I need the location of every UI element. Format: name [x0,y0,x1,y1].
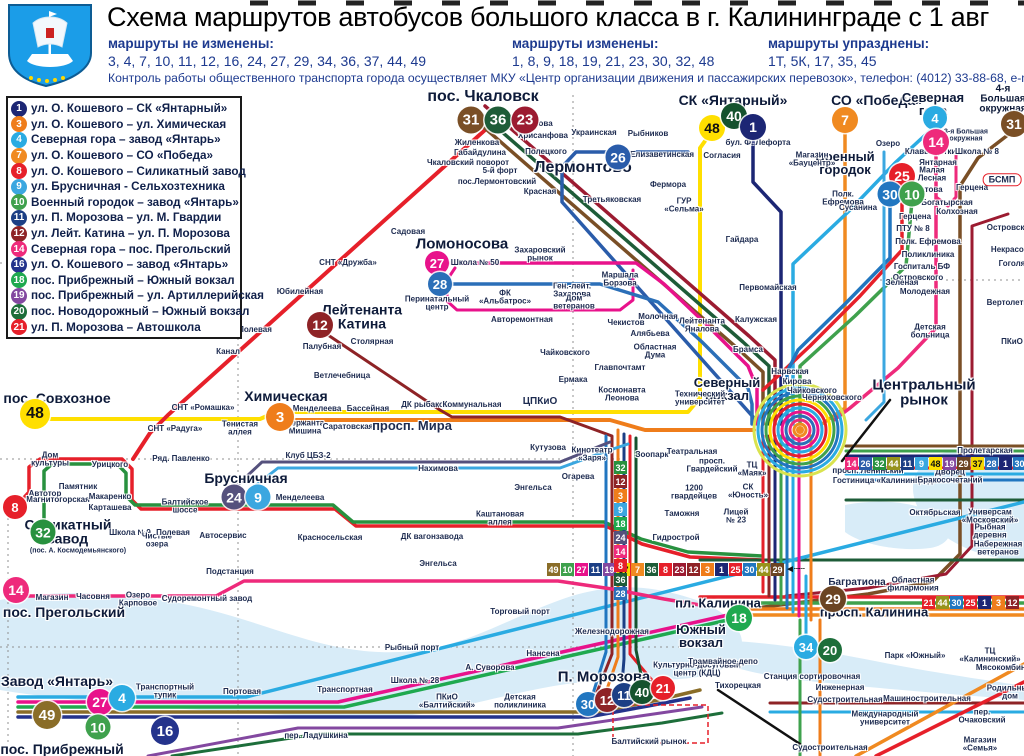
legend-item-route-3: 3ул. О. Кошевого – ул. Химическая [11,117,237,133]
map-stop-label: Магазин [36,594,69,602]
route-strip-cell: 1 [715,563,728,576]
map-stop-label: Балтийский рынок [612,738,687,746]
map-header: Схема маршрутов автобусов большого класс… [0,0,1024,94]
route-badge: 34 [794,635,818,659]
map-stop-label: Транспортный тупик [136,684,194,701]
route-strip-cell: 49 [547,563,560,576]
map-stop-label: Урицкого [92,461,128,469]
map-stop-label: Вертолетная [987,299,1024,307]
map-stop-label: Коммунальная [442,401,501,409]
route-strip-cell: 29 [771,563,784,576]
route-badge: 4 [11,132,27,148]
legend-route-destination: ул. Брусничная - Сельхозтехника [31,180,225,193]
map-stop-label: Школа № 8 [955,148,999,156]
route-strip-cell: 36 [645,563,658,576]
map-stop-label: Полецкого [525,148,567,156]
route-strip-cell: 1 [978,596,991,609]
route-badge: 49 [33,701,61,729]
route-badge: 10 [11,194,27,210]
map-stop-label: Судоремонтный завод [162,595,252,603]
map-stop-label: Родильный дом [987,685,1024,702]
map-stop-label: Озеро [876,140,900,148]
map-stop-label: СНТ «Дружба» [319,259,377,267]
map-stop-label: Фермора [650,181,686,189]
route-badge: 10 [86,715,111,740]
map-stop-label: Театральная [667,448,718,456]
route-strip-cell: 3 [614,489,627,502]
map-stop-label: Ряд. Павленко [152,455,209,463]
route-strip-cell: 8 [659,563,672,576]
map-stop-label: Набережная ветеранов [974,541,1022,558]
map-stop-label: пер. Очаковский [958,709,1005,726]
route-badge: 40 [630,680,654,704]
legend-item-route-4: 4Северная гора – завод «Янтарь» [11,132,237,148]
map-stop-label: Дворец Бракосочетаний [918,469,983,486]
control-note: Контроль работы общественного транспорта… [108,71,1024,85]
map-stop-label: Рыбников [628,130,669,138]
map-stop-label: Полк. Ефремова [895,238,961,246]
map-stop-label: Станция сортировочная [764,673,861,681]
route-badge: 4 [109,685,135,711]
map-stop-label: ПТУ № 8 [896,225,929,233]
route-strip-cell: 10 [561,563,574,576]
direction-arrow-icon: ◄┄┄ [785,563,804,576]
legend-item-route-11: 11ул. П. Морозова – ул. М. Гвардии [11,210,237,226]
bus-route-map-page: пос. ЧкаловскЛермонтовоСК «Янтарный»СО «… [0,0,1024,756]
map-stop-label: ДК вагонзавода [401,533,463,541]
route-strip-cell: 12 [1006,596,1019,609]
map-stop-label: Некрасова [991,246,1024,254]
route-strip-cell: 26 [859,457,872,470]
map-place-label: Завод «Янтарь» [1,674,113,688]
route-strip-cell: 37 [971,457,984,470]
map-stop-label: ПКиО «Балтийский» [419,694,475,711]
route-strip-cell: 29 [957,457,970,470]
map-stop-label: ЦПКиО [523,397,558,408]
map-place-label: пос. Прегольский [3,605,125,619]
route-strip-cell: 44 [887,457,900,470]
route-strip-cell: 44 [757,563,770,576]
map-stop-label: Украинская [571,129,616,137]
map-stop-label: Колхозная [936,208,978,216]
map-stop-label: просп. Гвардейский [686,458,737,475]
legend-route-destination: ул. О. Кошевого – ул. Химическая [31,118,226,131]
route-badge: 8 [11,163,27,179]
route-strip-cell: 12 [687,563,700,576]
route-badge: 8 [3,495,27,519]
legend-route-destination: Северная гора – пос. Прегольский [31,243,231,256]
map-stop-label: Судостроительная [807,696,882,704]
map-stop-label: Малая Лесная [918,167,946,184]
map-stop-label: Ветлечебница [314,372,370,380]
routes-changed-list: 1, 8, 9, 18, 19, 21, 23, 30, 32, 48 [512,53,714,69]
map-stop-label: (пос. А. Космодемьянского) [30,547,126,554]
map-stop-label: Детская поликлиника [494,694,546,711]
route-strip-cell: 27 [575,563,588,576]
legend-item-route-1: 1ул. О. Кошевого – СК «Янтарный» [11,101,237,117]
route-badge: 18 [726,605,752,631]
legend-item-route-9: 9ул. Брусничная - Сельхозтехника [11,179,237,195]
legend-route-destination: ул. П. Морозова – ул. М. Гвардии [31,211,221,224]
route-strip-cell: 3 [992,596,1005,609]
legend-item-route-19: 19пос. Прибрежный – ул. Артиллерийская [11,288,237,304]
map-stop-label: БСМП [983,173,1022,186]
map-stop-label: Юбилейная [277,288,323,296]
route-strip-cell: 30 [743,563,756,576]
route-badge: 48 [20,399,50,429]
map-stop-label: Школа № 50 [451,259,499,267]
route-badge: 28 [428,272,452,296]
map-stop-label: Дом культуры [31,452,69,469]
map-stop-label: Молочная [638,313,678,321]
map-stop-label: 1200 гвардейцев [671,485,717,502]
map-stop-label: Каштановая аллея [476,511,524,528]
map-stop-label: Столярная [351,338,394,346]
map-stop-label: Госпиталь БФ [894,263,950,271]
map-stop-label: Кутузова [530,444,566,452]
routes-unchanged-group: маршруты не изменены: 3, 4, 7, 10, 11, 1… [108,36,426,69]
routes-changed-label: маршруты изменены: [512,36,714,51]
map-stop-label: Зоопарк [636,451,669,459]
map-place-label: Ломоносова [416,236,508,251]
route-strip-cell: 12 [614,475,627,488]
map-stop-label: Канал [216,348,240,356]
map-stop-label: пер. Ладушкина [284,732,347,740]
kaliningrad-coat-of-arms-icon [5,3,95,89]
route-badge: 12 [307,312,333,338]
route-badge: 16 [151,717,179,745]
legend-route-destination: ул. О. Кошевого – СК «Янтарный» [31,102,227,115]
map-stop-label: Чайковского [540,349,590,357]
route-strip: 491027111937736823123125304429◄┄┄ [547,563,804,576]
map-stop-label: Октябрьская [909,509,960,517]
map-stop-label: ФК «Альбатрос» [479,290,531,307]
map-stop-label: Зеленая [886,279,919,287]
route-badge: 29 [820,586,846,612]
routes-changed-group: маршруты изменены: 1, 8, 9, 18, 19, 21, … [512,36,714,69]
route-strip-cell: 25 [964,596,977,609]
map-stop-label: Саратовская [323,423,374,431]
page-title: Схема маршрутов автобусов большого класс… [107,2,989,33]
route-badge: 31 [458,107,485,134]
map-stop-label: Трамвайное депо [688,658,758,666]
map-stop-label: Бассейная [347,405,389,413]
map-stop-label: Кинотеатр «Заря» [572,447,613,464]
map-stop-label: Областная филармония [887,577,938,594]
map-stop-label: Транспортная [317,686,373,694]
map-stop-label: Дом ветеранов [553,295,595,312]
map-stop-label: Жиленкова [455,139,499,147]
map-stop-label: Гайдара [726,236,759,244]
map-stop-label: Гоголя [999,260,1024,268]
map-stop-label: Менделеева [293,405,342,413]
map-stop-label: Герцена [956,184,988,192]
route-badge: 7 [832,107,858,133]
map-stop-label: Магазин «Бауцентр» [789,152,836,169]
route-badge: 20 [11,304,27,320]
route-badge: 18 [11,272,27,288]
map-stop-label: Менделеева [276,494,325,502]
map-stop-label: Мясокомбинат [976,664,1024,672]
route-strip-cell: 36 [614,573,627,586]
route-badge: 36 [485,107,512,134]
map-stop-label: Энгельса [419,560,456,568]
legend-item-route-18: 18пос. Прибрежный – Южный вокзал [11,273,237,289]
map-stop-label: ТЦ «Маяк» [738,462,767,479]
legend-route-destination: пос. Новодорожный – Южный вокзал [31,305,249,318]
legend-route-destination: ул. О. Кошевого – завод «Янтарь» [31,258,228,271]
route-strip-cell: 7 [631,563,644,576]
map-stop-label: Машиностроительная [883,695,971,703]
route-legend: 1ул. О. Кошевого – СК «Янтарный»3ул. О. … [6,96,242,339]
map-stop-label: Красная [524,188,557,196]
map-stop-label: пос.Лермонтовский [458,178,536,186]
map-stop-label: Подстанция [206,568,254,576]
route-badge: 23 [512,107,539,134]
map-stop-label: ПКиО [1001,338,1023,346]
route-strip-cell: 23 [673,563,686,576]
routes-unchanged-label: маршруты не изменены: [108,36,426,51]
map-stop-label: Палубная [303,343,342,351]
route-strip-cell: 9 [915,457,928,470]
legend-item-route-14: 14Северная гора – пос. Прегольский [11,241,237,257]
legend-route-destination: ул. П. Морозова – Автошкола [31,321,201,334]
map-stop-label: Космонавта Леонова [598,387,645,404]
route-strip-vertical: 32123918241483628 [614,461,627,600]
map-stop-label: Ермака [559,376,588,384]
map-stop-label: СНТ «Ромашка» [172,404,235,412]
route-strip-cell: 1 [999,457,1012,470]
map-stop-label: Международный университет [852,711,919,728]
map-stop-label: Маршала Борзова [602,272,639,289]
route-badge: 14 [923,129,949,155]
map-stop-label: СНТ «Радуга» [148,425,203,433]
route-strip-cell: 30 [950,596,963,609]
map-stop-label: Огарева [562,473,595,481]
legend-route-destination: пос. Прибрежный – ул. Артиллерийская [31,289,264,302]
route-strip-cell: 28 [985,457,998,470]
legend-item-route-10: 10Военный городок – завод «Янтарь» [11,195,237,211]
map-stop-label: ГУР «Сельма» [664,198,703,215]
map-stop-label: Третьяковская [583,196,641,204]
route-badge: 16 [11,257,27,273]
route-strip: 214430251312 [922,596,1019,609]
map-place-label: пос. Совхозное [3,391,110,405]
map-stop-label: Лицей № 23 [724,509,749,526]
map-stop-label: СК «Юность» [728,484,768,501]
route-strip-cell: 11 [589,563,602,576]
route-badge: 11 [11,210,27,226]
map-stop-label: Озеро Карповое [119,592,157,609]
map-stop-label: Магнитогорская [26,496,90,504]
map-place-label: Центральный рынок [872,378,975,409]
map-stop-label: Парк «Южный» [885,652,946,660]
route-strip-cell: 25 [729,563,742,576]
route-strip-cell: 44 [936,596,949,609]
route-badge: 21 [11,319,27,335]
map-stop-label: Технический университет [675,391,725,408]
route-strip-cell: 21 [922,596,935,609]
route-badge: 31 [1001,111,1024,137]
map-stop-label: Авторемонтная [491,316,553,324]
legend-item-route-16: 16ул. О. Кошевого – завод «Янтарь» [11,257,237,273]
map-stop-label: Лейтенанта Яналова [679,318,725,335]
map-stop-label: Нансена [526,650,559,658]
map-stop-label: 5-й форт [483,167,518,175]
map-place-label: Южный вокзал [676,623,726,650]
route-strip-cell: 14 [614,545,627,558]
map-stop-label: Областная Дума [634,344,677,361]
map-stop-label: Энгельса [514,484,551,492]
map-place-label: Лейтенанта Катина [322,303,402,332]
map-stop-label: Брамса [733,346,763,354]
route-strip-cell: 32 [614,461,627,474]
map-stop-label: Тенистая аллея [222,421,258,438]
route-strip-cell: 11 [901,457,914,470]
map-stop-label: Тихорецкая [715,682,761,690]
map-place-label: пос. Прибрежный [0,742,123,756]
route-badge: 14 [3,577,29,603]
route-strip-cell: 3 [701,563,714,576]
map-stop-label: Часовня [76,593,110,601]
route-strip-cell: 30 [1013,457,1024,470]
map-stop-label: 3-я Большая окружная [944,129,988,144]
route-badge: 1 [11,101,27,117]
map-stop-label: Торговый порт [490,608,550,616]
map-stop-label: Островского [987,224,1024,232]
map-stop-label: Нахимова [418,465,458,473]
map-stop-label: Молодежная [900,288,950,296]
legend-route-destination: Военный городок – завод «Янтарь» [31,196,239,209]
route-badge: 3 [11,116,27,132]
map-stop-label: Памятник [59,483,97,491]
map-stop-label: Железнодорожная [575,628,649,636]
legend-item-route-20: 20пос. Новодорожный – Южный вокзал [11,304,237,320]
map-stop-label: Калужская [735,316,777,324]
legend-item-route-8: 8ул. О. Кошевого – Силикатный завод [11,163,237,179]
routes-abolished-group: маршруты упразднены: 1Т, 5К, 17, 35, 45 [768,36,929,69]
map-stop-label: Герцена [899,213,931,221]
route-strip-cell: 18 [614,517,627,530]
map-stop-label: Балтийское шоссе [162,499,209,516]
map-stop-label: Инженерная [816,684,865,692]
route-strip-cell: 48 [929,457,942,470]
map-stop-label: Черняховского [802,394,862,402]
map-stop-label: Пролетарская [957,447,1012,455]
map-stop-label: просп. Мира [372,419,452,433]
map-stop-label: Главпочтамт [595,364,646,372]
route-badge: 20 [818,638,842,662]
map-stop-label: Судостроительная [792,744,867,752]
route-strip-cell: 9 [614,503,627,516]
route-badge: 26 [606,145,631,170]
map-stop-label: Захаровский рынок [514,247,565,264]
map-place-label: Химическая [244,389,327,403]
map-stop-label: Полевая [238,326,272,334]
route-strip-cell: 24 [614,531,627,544]
route-strip-cell: 8 [614,559,627,572]
map-stop-label: Перинатальный центр [405,296,469,313]
route-badge: 4 [923,106,947,130]
route-badge: 3 [266,403,294,431]
route-strip-cell: 19 [943,457,956,470]
map-stop-label: А. Суворова [465,664,514,672]
route-strip: 142632441194819293728130257 [845,457,1024,470]
map-stop-label: Рыбный порт [385,644,439,652]
route-badge: 21 [651,676,675,700]
map-stop-label: Магазин «Семья» [958,737,1002,754]
route-badge: 1 [740,114,766,140]
route-strip-cell: 28 [614,587,627,600]
route-badge: 19 [11,288,27,304]
map-stop-label: Садовая [391,228,425,236]
map-stop-label: Гидрострой [652,534,699,542]
legend-item-route-12: 12ул. Лейт. Катина – ул. П. Морозова [11,226,237,242]
routes-abolished-list: 1Т, 5К, 17, 35, 45 [768,53,929,69]
map-stop-label: Карташева [89,504,132,512]
map-stop-label: Автосервис [199,532,246,540]
map-stop-label: Портовая [223,688,261,696]
route-badge: 14 [11,241,27,257]
map-stop-label: Поликлиника [902,251,955,259]
route-badge: 7 [11,148,27,164]
legend-item-route-21: 21ул. П. Морозова – Автошкола [11,319,237,335]
legend-route-destination: ул. О. Кошевого – СО «Победа» [31,149,213,162]
route-badge: 24 [222,485,247,510]
map-place-label: Брусничная [204,471,287,485]
map-stop-label: Сусанина [839,204,877,212]
route-strip-cell: 32 [873,457,886,470]
legend-route-destination: ул. О. Кошевого – Силикатный завод [31,165,246,178]
map-stop-label: Согласия [703,152,740,160]
map-stop-label: Нарвская [771,368,808,376]
route-badge: 32 [31,520,56,545]
map-stop-label: Таможня [665,510,700,518]
routes-abolished-label: маршруты упразднены: [768,36,929,51]
map-stop-label: Полевая [156,529,190,537]
route-badge: 9 [11,179,27,195]
route-strip-cell: 14 [845,457,858,470]
legend-route-destination: ул. Лейт. Катина – ул. П. Морозова [31,227,230,240]
map-stop-label: Клуб ЦБЗ-2 [285,452,330,460]
map-stop-label: Школа № 28 [391,677,439,685]
map-stop-label: Габайдулина [454,149,506,157]
map-place-label: пл. Калинина [675,596,761,609]
map-stop-label: Елизаветинская [630,151,694,159]
map-stop-label: Красносельская [298,534,363,542]
legend-route-destination: Северная гора – завод «Янтарь» [31,133,221,146]
routes-unchanged-list: 3, 4, 7, 10, 11, 12, 16, 24, 27, 29, 34,… [108,53,426,69]
route-badge: 12 [11,226,27,242]
legend-route-destination: пос. Прибрежный – Южный вокзал [31,274,235,287]
map-stop-label: Алябьева [630,330,669,338]
map-stop-label: Детская больница [911,324,950,341]
map-stop-label: Рыбная деревня [973,524,1007,541]
map-stop-label: Макаренко [89,493,132,501]
legend-item-route-7: 7ул. О. Кошевого – СО «Победа» [11,148,237,164]
route-badge: 9 [246,485,271,510]
map-stop-label: бул. Ф. Лефорта [726,139,791,147]
map-stop-label: Первомайская [739,284,796,292]
route-badge: 10 [900,182,925,207]
